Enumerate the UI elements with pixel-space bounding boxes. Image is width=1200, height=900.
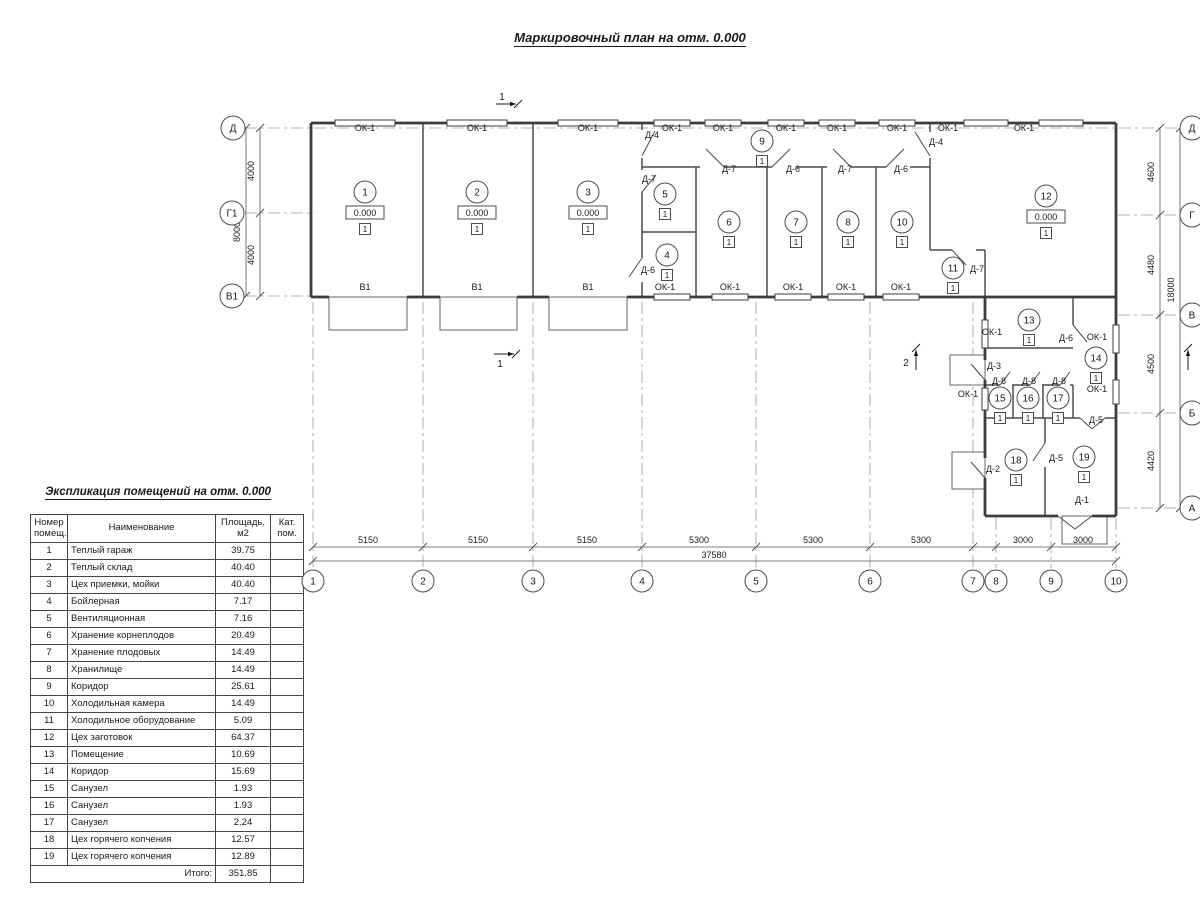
room-number: 7 [793,218,799,229]
floor-type-value: 1 [475,225,480,234]
dim-label: 4000 [246,161,256,181]
room-marker-6: 61 [718,211,740,248]
axis-bubble-label: В [1189,311,1196,322]
room-number: 6 [726,218,732,229]
axis-bubble-label: 3 [530,577,536,588]
window-icon [1113,325,1119,353]
floor-type-value: 1 [1027,336,1032,345]
dim-label: 5150 [468,535,488,545]
room-marker-2: 20.0001 [458,181,496,235]
section-arrowhead [1186,350,1190,356]
axis-bubble-label: Г1 [227,209,238,220]
window-icon [982,388,988,410]
opening-label: В1 [359,282,370,292]
floor-type-value: 1 [727,238,732,247]
window-icon [712,294,748,300]
window-icon [828,294,864,300]
axis-bubble-label: 1 [310,577,316,588]
axis-bubble-label: 8 [993,577,999,588]
opening-label: Д-8 [992,376,1006,386]
floor-type-value: 1 [665,271,670,280]
opening-label: Д-8 [1052,376,1066,386]
floor-type-value: 1 [663,210,668,219]
room-number: 3 [585,188,591,199]
axis-bubble-label: Д [230,124,237,135]
opening-label: ОК-1 [958,389,978,399]
axis-bubble-label: Д [1189,124,1196,135]
opening-label: ОК-1 [982,327,1002,337]
dim-label: 3000 [1013,535,1033,545]
door-swing [915,132,930,156]
room-marker-11: 111 [942,257,964,294]
dim-label: 37580 [701,550,726,560]
room-marker-12: 120.0001 [1027,185,1065,239]
floor-type-value: 1 [586,225,591,234]
dim-label: 18000 [1166,277,1176,302]
room-marker-10: 101 [891,211,913,248]
elevation-value: 0.000 [354,208,377,218]
dim-label: 5150 [577,535,597,545]
floor-type-value: 1 [846,238,851,247]
opening-label: Д-4 [645,130,659,140]
floor-plan: 5150515051505300530053003000300037580400… [0,0,1200,900]
dim-label: 5150 [358,535,378,545]
room-marker-14: 141 [1085,347,1107,384]
opening-label: Д-7 [838,164,852,174]
elevation-value: 0.000 [466,208,489,218]
window-icon [1113,380,1119,404]
section-label: 1 [497,359,503,370]
axis-bubble-label: 5 [753,577,759,588]
section-arrowhead [510,102,516,106]
porch-outline [950,355,985,385]
section-arrowhead [914,350,918,356]
floor-type-value: 1 [760,157,765,166]
axis-bubble-label: Г [1189,211,1195,222]
opening-label: Д-6 [641,265,655,275]
opening-label: ОК-1 [938,123,958,133]
section-label: 1 [499,92,505,103]
window-icon [1039,120,1083,126]
elevation-value: 0.000 [1035,212,1058,222]
axis-bubble-label: 6 [867,577,873,588]
floor-type-value: 1 [1082,473,1087,482]
room-marker-4: 41 [656,244,678,281]
window-icon [883,294,919,300]
window-icon [775,294,811,300]
room-marker-18: 181 [1005,449,1027,486]
room-marker-5: 51 [654,183,676,220]
opening-label: Д-6 [894,164,908,174]
opening-label: Д-7 [970,264,984,274]
window-icon [654,294,690,300]
axis-bubble-label: А [1189,504,1196,515]
opening-label: Д-5 [1049,453,1063,463]
room-number: 13 [1023,316,1035,327]
room-number: 8 [845,218,851,229]
room-number: 17 [1052,394,1064,405]
opening-label: ОК-1 [578,123,598,133]
opening-label: Д-3 [987,361,1001,371]
elevation-value: 0.000 [577,208,600,218]
opening-label: ОК-1 [891,282,911,292]
floor-type-value: 1 [1026,414,1031,423]
room-marker-9: 91 [751,130,773,167]
dim-label: 5300 [689,535,709,545]
room-number: 19 [1078,453,1090,464]
opening-label: Д-6 [786,164,800,174]
opening-label: Д-7 [722,164,736,174]
opening-label: ОК-1 [720,282,740,292]
opening-label: ОК-1 [355,123,375,133]
floor-type-value: 1 [951,284,956,293]
dim-label: 3000 [1073,535,1093,545]
room-number: 18 [1010,456,1022,467]
opening-label: ОК-1 [467,123,487,133]
room-number: 14 [1090,354,1102,365]
opening-label: ОК-1 [1087,332,1107,342]
room-number: 10 [896,218,908,229]
room-number: 2 [474,188,480,199]
room-number: 16 [1022,394,1034,405]
axis-bubble-label: 2 [420,577,426,588]
opening-label: ОК-1 [887,123,907,133]
room-marker-1: 10.0001 [346,181,384,235]
opening-label: Д-2 [986,464,1000,474]
room-number: 9 [759,137,765,148]
opening-label: Д-1 [1075,495,1089,505]
opening-label: Д-6 [1059,333,1073,343]
opening-label: ОК-1 [662,123,682,133]
axis-bubble-label: 4 [639,577,645,588]
floor-type-value: 1 [1094,374,1099,383]
room-number: 12 [1040,192,1052,203]
section-label: 2 [903,358,909,369]
floor-type-value: 1 [1014,476,1019,485]
room-number: 4 [664,251,670,262]
dim-label: 4500 [1146,354,1156,374]
door-swing [1073,325,1087,342]
window-icon [964,120,1008,126]
axis-bubble-label: Б [1189,409,1196,420]
dim-label: 4420 [1146,451,1156,471]
room-marker-13: 131 [1018,309,1040,346]
opening-label: ОК-1 [827,123,847,133]
dim-label: 4480 [1146,255,1156,275]
opening-label: ОК-1 [776,123,796,133]
axis-bubble-label: 7 [970,577,976,588]
porch-outline [549,297,627,330]
porch-outline [329,297,407,330]
dim-label: 5300 [911,535,931,545]
section-arrowhead [508,352,514,356]
opening-label: В1 [471,282,482,292]
opening-label: ОК-1 [1087,384,1107,394]
dim-label: 4600 [1146,162,1156,182]
opening-label: Д-4 [929,137,943,147]
opening-label: ОК-1 [783,282,803,292]
opening-label: Д-8 [1022,376,1036,386]
room-marker-19: 191 [1073,446,1095,483]
door-swing [1033,443,1045,461]
axis-bubble-label: 10 [1110,577,1122,588]
porch-outline [952,452,985,489]
opening-label: Д-5 [1089,415,1103,425]
floor-type-value: 1 [1056,414,1061,423]
opening-label: В1 [582,282,593,292]
room-number: 1 [362,188,368,199]
porch-outline [440,297,517,330]
room-marker-7: 71 [785,211,807,248]
floor-type-value: 1 [363,225,368,234]
room-number: 5 [662,190,668,201]
room-marker-3: 30.0001 [569,181,607,235]
drawing-sheet: Маркировочный план на отм. 0.000 Эксплик… [0,0,1200,900]
opening-label: ОК-1 [1014,123,1034,133]
axis-bubble-label: 9 [1048,577,1054,588]
floor-type-value: 1 [998,414,1003,423]
axis-bubble-label: В1 [226,292,239,303]
room-number: 11 [948,264,959,275]
dim-label: 5300 [803,535,823,545]
room-marker-8: 81 [837,211,859,248]
opening-label: Д-7 [642,174,656,184]
opening-label: ОК-1 [836,282,856,292]
opening-label: ОК-1 [713,123,733,133]
floor-type-value: 1 [1044,229,1049,238]
floor-type-value: 1 [794,238,799,247]
room-number: 15 [994,394,1006,405]
walls-layer [311,123,1116,516]
opening-label: ОК-1 [655,282,675,292]
floor-type-value: 1 [900,238,905,247]
dim-label: 4000 [246,245,256,265]
